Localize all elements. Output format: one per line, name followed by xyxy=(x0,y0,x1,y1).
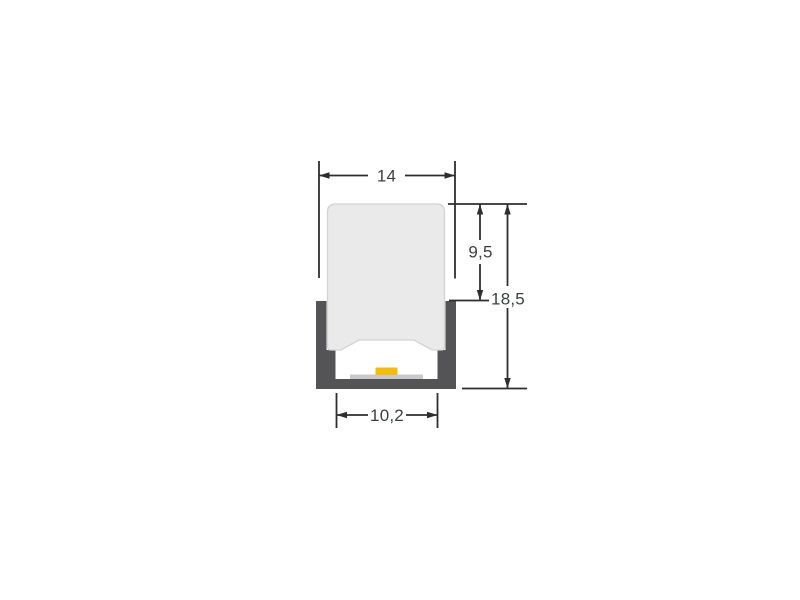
diffuser xyxy=(328,204,445,350)
profile-cross-section-drawing: 14 9,5 18,5 10,2 xyxy=(0,0,800,600)
led-chip xyxy=(376,368,398,376)
arrowhead-left-icon xyxy=(337,412,348,418)
arrowhead-up-icon xyxy=(504,204,510,215)
dim-label-total-height: 18,5 xyxy=(491,290,525,309)
arrowhead-down-icon xyxy=(504,378,510,389)
arrowhead-right-icon xyxy=(427,412,438,418)
arrowhead-left-icon xyxy=(319,172,330,179)
pcb-strip xyxy=(350,375,423,380)
arrowhead-right-icon xyxy=(445,172,456,179)
arrowhead-up-icon xyxy=(477,204,483,215)
arrowhead-down-icon xyxy=(477,290,483,301)
dim-label-outer-width: 14 xyxy=(377,167,396,186)
drawing-canvas: 14 9,5 18,5 10,2 xyxy=(0,0,800,600)
dim-label-inner-width: 10,2 xyxy=(370,406,404,425)
dim-label-diffuser-height: 9,5 xyxy=(468,243,492,262)
